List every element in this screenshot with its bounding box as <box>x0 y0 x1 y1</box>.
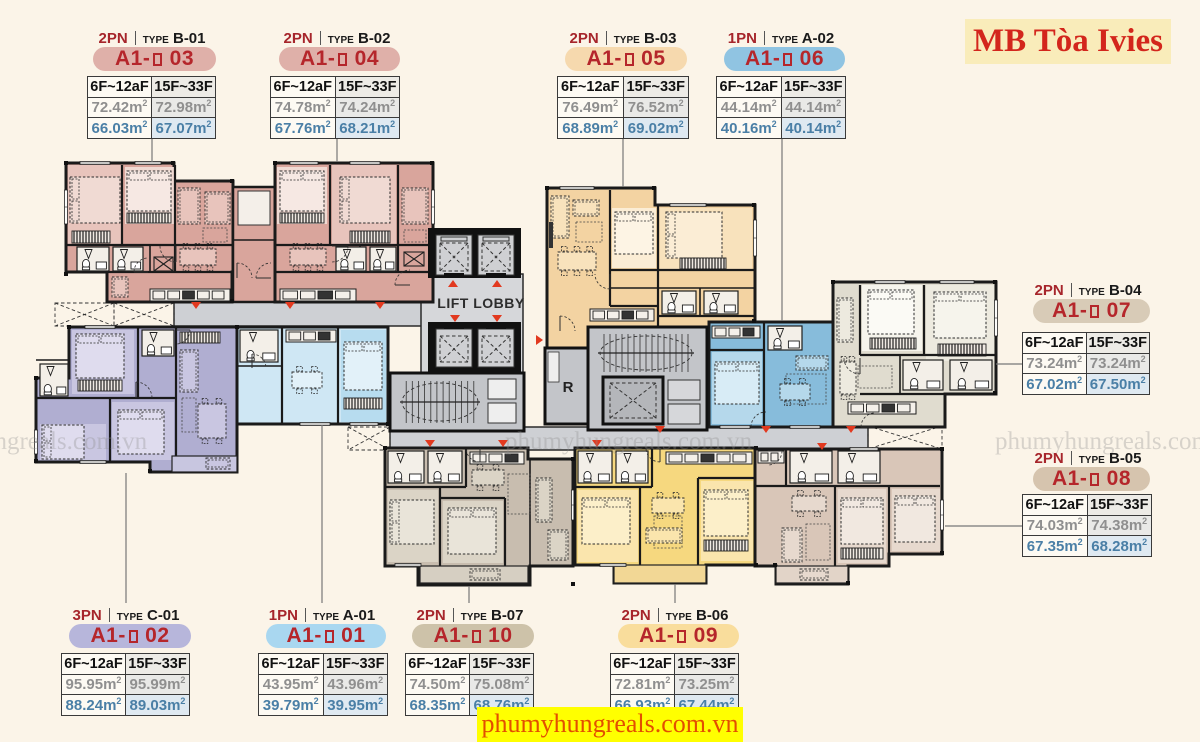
svg-text:R: R <box>563 379 574 396</box>
svg-text:LIFT LOBBY: LIFT LOBBY <box>437 295 525 311</box>
svg-text:phumyhungreals.com.vn: phumyhungreals.com.vn <box>505 428 753 455</box>
svg-text:phumyhungreals.com.vn: phumyhungreals.com.vn <box>0 428 148 455</box>
